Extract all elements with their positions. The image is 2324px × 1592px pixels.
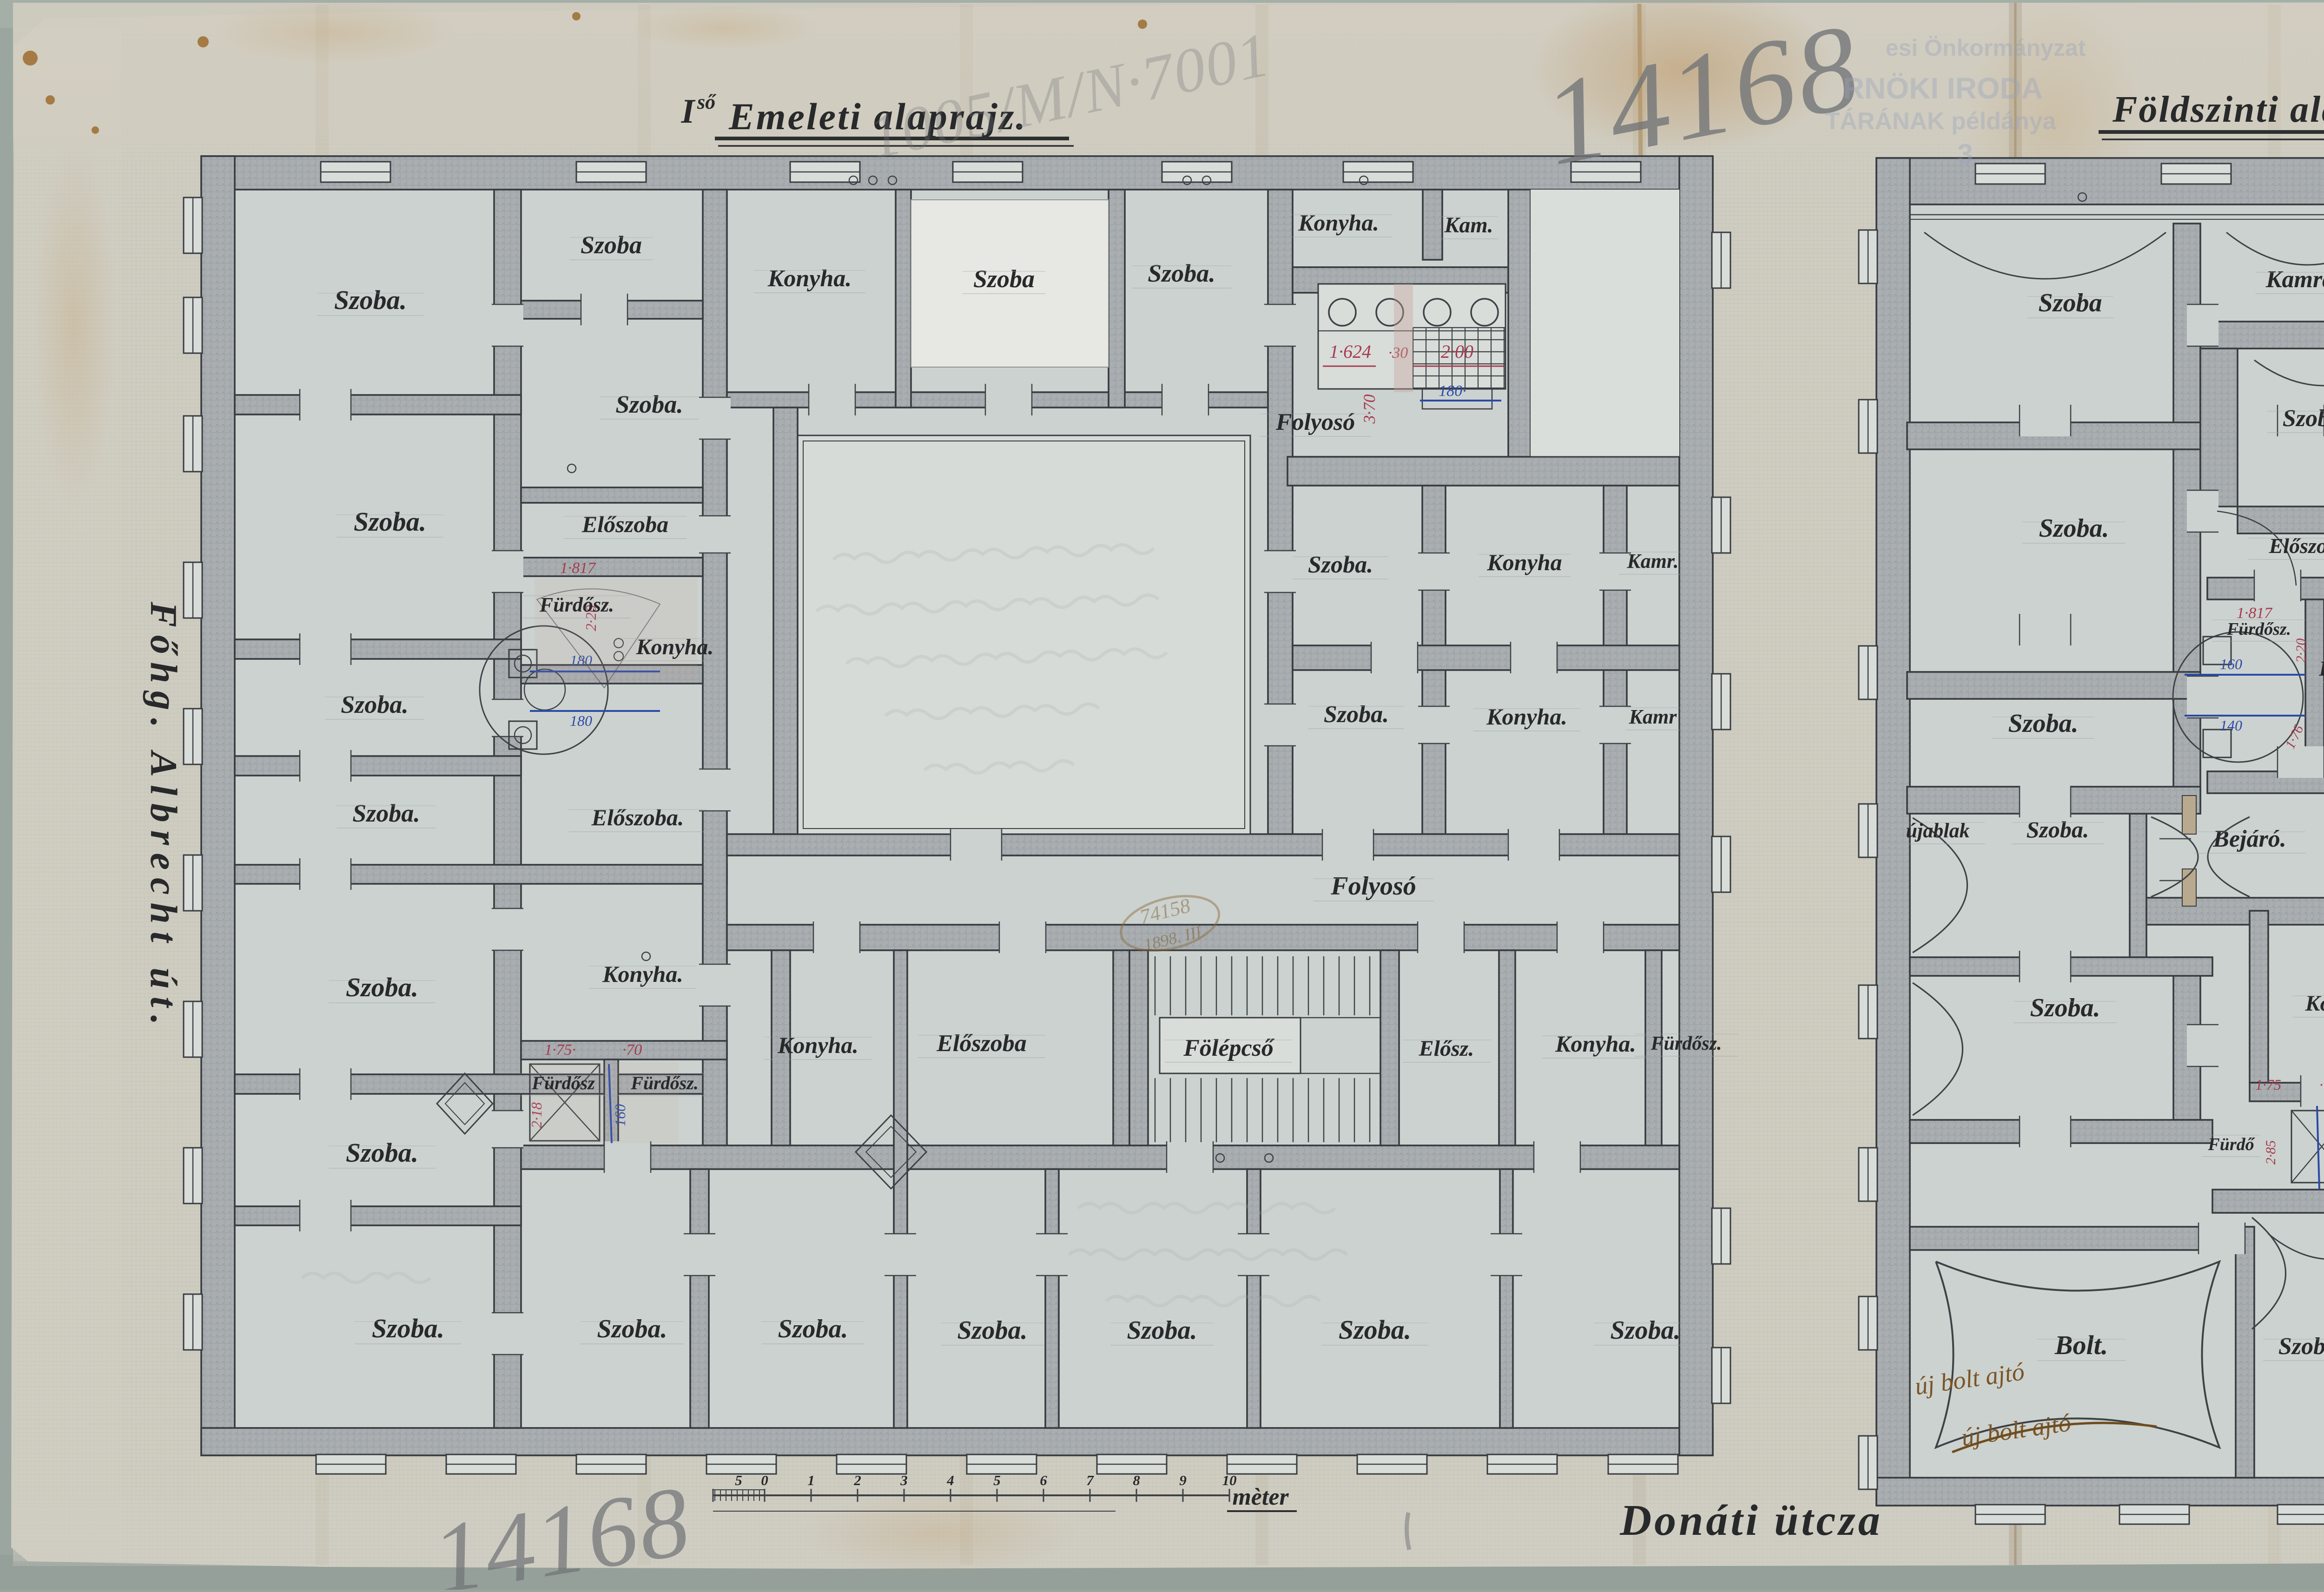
svg-text:Szoba: Szoba	[581, 231, 642, 259]
svg-text:esi Önkormányzat: esi Önkormányzat	[1886, 35, 2086, 61]
svg-text:0: 0	[761, 1472, 768, 1488]
svg-text:8: 8	[1133, 1472, 1140, 1488]
svg-text:Szoba.: Szoba.	[2027, 816, 2089, 842]
svg-text:9: 9	[1179, 1472, 1187, 1488]
svg-text:ső: ső	[697, 91, 717, 113]
svg-text:Szoba.: Szoba.	[346, 1138, 418, 1168]
svg-text:·70: ·70	[2319, 1076, 2324, 1093]
svg-text:2·20: 2·20	[2293, 638, 2309, 663]
svg-text:Előszoba.: Előszoba.	[591, 804, 684, 830]
svg-text:Szoba.: Szoba.	[1127, 1316, 1197, 1345]
svg-text:Konyha.: Konyha.	[2305, 991, 2324, 1016]
svg-text:Szoba: Szoba	[2039, 289, 2102, 317]
svg-text:Szoba.: Szoba.	[597, 1315, 667, 1343]
svg-text:RNÖKI IRODA: RNÖKI IRODA	[1843, 72, 2043, 105]
svg-text:Fürdősz: Fürdősz	[531, 1072, 595, 1093]
svg-text:Szoba.: Szoba.	[354, 507, 426, 537]
svg-text:2·00: 2·00	[1441, 341, 1473, 362]
svg-text:1: 1	[807, 1472, 815, 1488]
svg-text:Szoba.: Szoba.	[346, 972, 418, 1002]
svg-text:Bejáró.: Bejáró.	[2212, 826, 2286, 852]
svg-text:Szoba.: Szoba.	[352, 799, 420, 827]
svg-text:7: 7	[1086, 1472, 1094, 1488]
svg-text:4: 4	[946, 1472, 954, 1488]
svg-text:Konyha.: Konyha.	[1298, 210, 1379, 236]
svg-text:1·75: 1·75	[2255, 1076, 2281, 1093]
svg-text:140: 140	[2220, 717, 2242, 734]
svg-text:TÁRÁNAK példánya: TÁRÁNAK példánya	[1825, 108, 2057, 135]
svg-text:5: 5	[993, 1472, 1001, 1488]
svg-text:Szoba.: Szoba.	[1339, 1315, 1411, 1345]
svg-text:1·75·: 1·75·	[544, 1041, 576, 1059]
svg-text:Előszoba: Előszoba	[581, 511, 668, 537]
svg-text:Konyha.: Konyha.	[1486, 704, 1567, 730]
svg-text:Kamra.: Kamra.	[2265, 266, 2324, 293]
svg-text:Szoba.: Szoba.	[372, 1313, 444, 1343]
svg-text:Bolt.: Bolt.	[2054, 1330, 2108, 1360]
svg-text:Szoba.: Szoba.	[957, 1316, 1028, 1345]
svg-text:Fürdősz.: Fürdősz.	[539, 593, 614, 616]
svg-text:5: 5	[735, 1472, 742, 1488]
svg-text:Szoba.: Szoba.	[1148, 259, 1215, 287]
svg-text:Kamr: Kamr	[1629, 705, 1677, 728]
svg-text:Konyha.: Konyha.	[1555, 1031, 1636, 1057]
svg-text:Fölépcső: Fölépcső	[1183, 1035, 1275, 1061]
svg-text:Előszoba.: Előszoba.	[2269, 534, 2324, 558]
svg-text:Kamr.: Kamr.	[1626, 550, 1678, 572]
svg-text:Szoba.: Szoba.	[2030, 993, 2100, 1022]
svg-text:mèter: mèter	[1232, 1484, 1289, 1510]
svg-text:Szoba: Szoba	[973, 265, 1035, 293]
svg-text:Fürdősz.: Fürdősz.	[2226, 619, 2291, 639]
svg-text:Földszinti alaprajz.: Földszinti alaprajz.	[2112, 89, 2324, 130]
svg-text:Fürdősz.: Fürdősz.	[630, 1072, 699, 1093]
svg-text:6: 6	[1040, 1472, 1047, 1488]
svg-text:Folyosó: Folyosó	[1275, 409, 1355, 435]
svg-text:160: 160	[2220, 656, 2242, 672]
svg-text:Szoba.: Szoba.	[334, 285, 407, 315]
svg-text:1·624: 1·624	[1329, 341, 1371, 362]
svg-text:180·: 180·	[1439, 382, 1466, 400]
svg-text:Szoba.: Szoba.	[2283, 405, 2324, 432]
svg-text:Szoba.: Szoba.	[778, 1315, 848, 1343]
svg-text:2: 2	[853, 1472, 861, 1488]
svg-text:·70: ·70	[622, 1041, 642, 1059]
svg-text:Szoba.: Szoba.	[2039, 514, 2109, 543]
svg-text:Konyha: Konyha	[1486, 549, 1562, 575]
svg-text:Szoba.: Szoba.	[2008, 709, 2079, 738]
svg-text:3·70: 3·70	[1360, 395, 1379, 424]
svg-text:Szoba.: Szoba.	[2278, 1333, 2324, 1360]
svg-text:Előszoba: Előszoba	[936, 1030, 1027, 1057]
svg-text:Konyha.: Konyha.	[602, 961, 683, 987]
svg-text:Folyosó: Folyosó	[1330, 872, 1416, 901]
svg-text:Donáti ütcza: Donáti ütcza	[1619, 1496, 1883, 1545]
svg-text:Szoba.: Szoba.	[341, 691, 409, 718]
svg-text:Szoba.: Szoba.	[1324, 701, 1389, 728]
svg-text:Főhg. Albrecht út.: Főhg. Albrecht út.	[143, 601, 185, 1033]
svg-text:Konyha.: Konyha.	[2318, 657, 2324, 680]
svg-text:Fürdősz.: Fürdősz.	[1651, 1033, 1722, 1054]
svg-text:Konyha.: Konyha.	[777, 1032, 858, 1058]
svg-text:Fürdő: Fürdő	[2207, 1135, 2255, 1154]
svg-text:180: 180	[570, 712, 592, 729]
svg-text:Szoba.: Szoba.	[615, 390, 683, 418]
svg-text:3: 3	[900, 1472, 908, 1488]
svg-text:Szoba.: Szoba.	[1308, 552, 1373, 578]
svg-text:Szoba.: Szoba.	[1611, 1316, 1681, 1345]
svg-text:2·85: 2·85	[2263, 1140, 2278, 1165]
svg-text:Konyha.: Konyha.	[767, 265, 852, 292]
svg-text:I: I	[681, 92, 696, 131]
svg-text:1·817: 1·817	[560, 559, 597, 577]
svg-text:3: 3	[1957, 138, 1973, 170]
